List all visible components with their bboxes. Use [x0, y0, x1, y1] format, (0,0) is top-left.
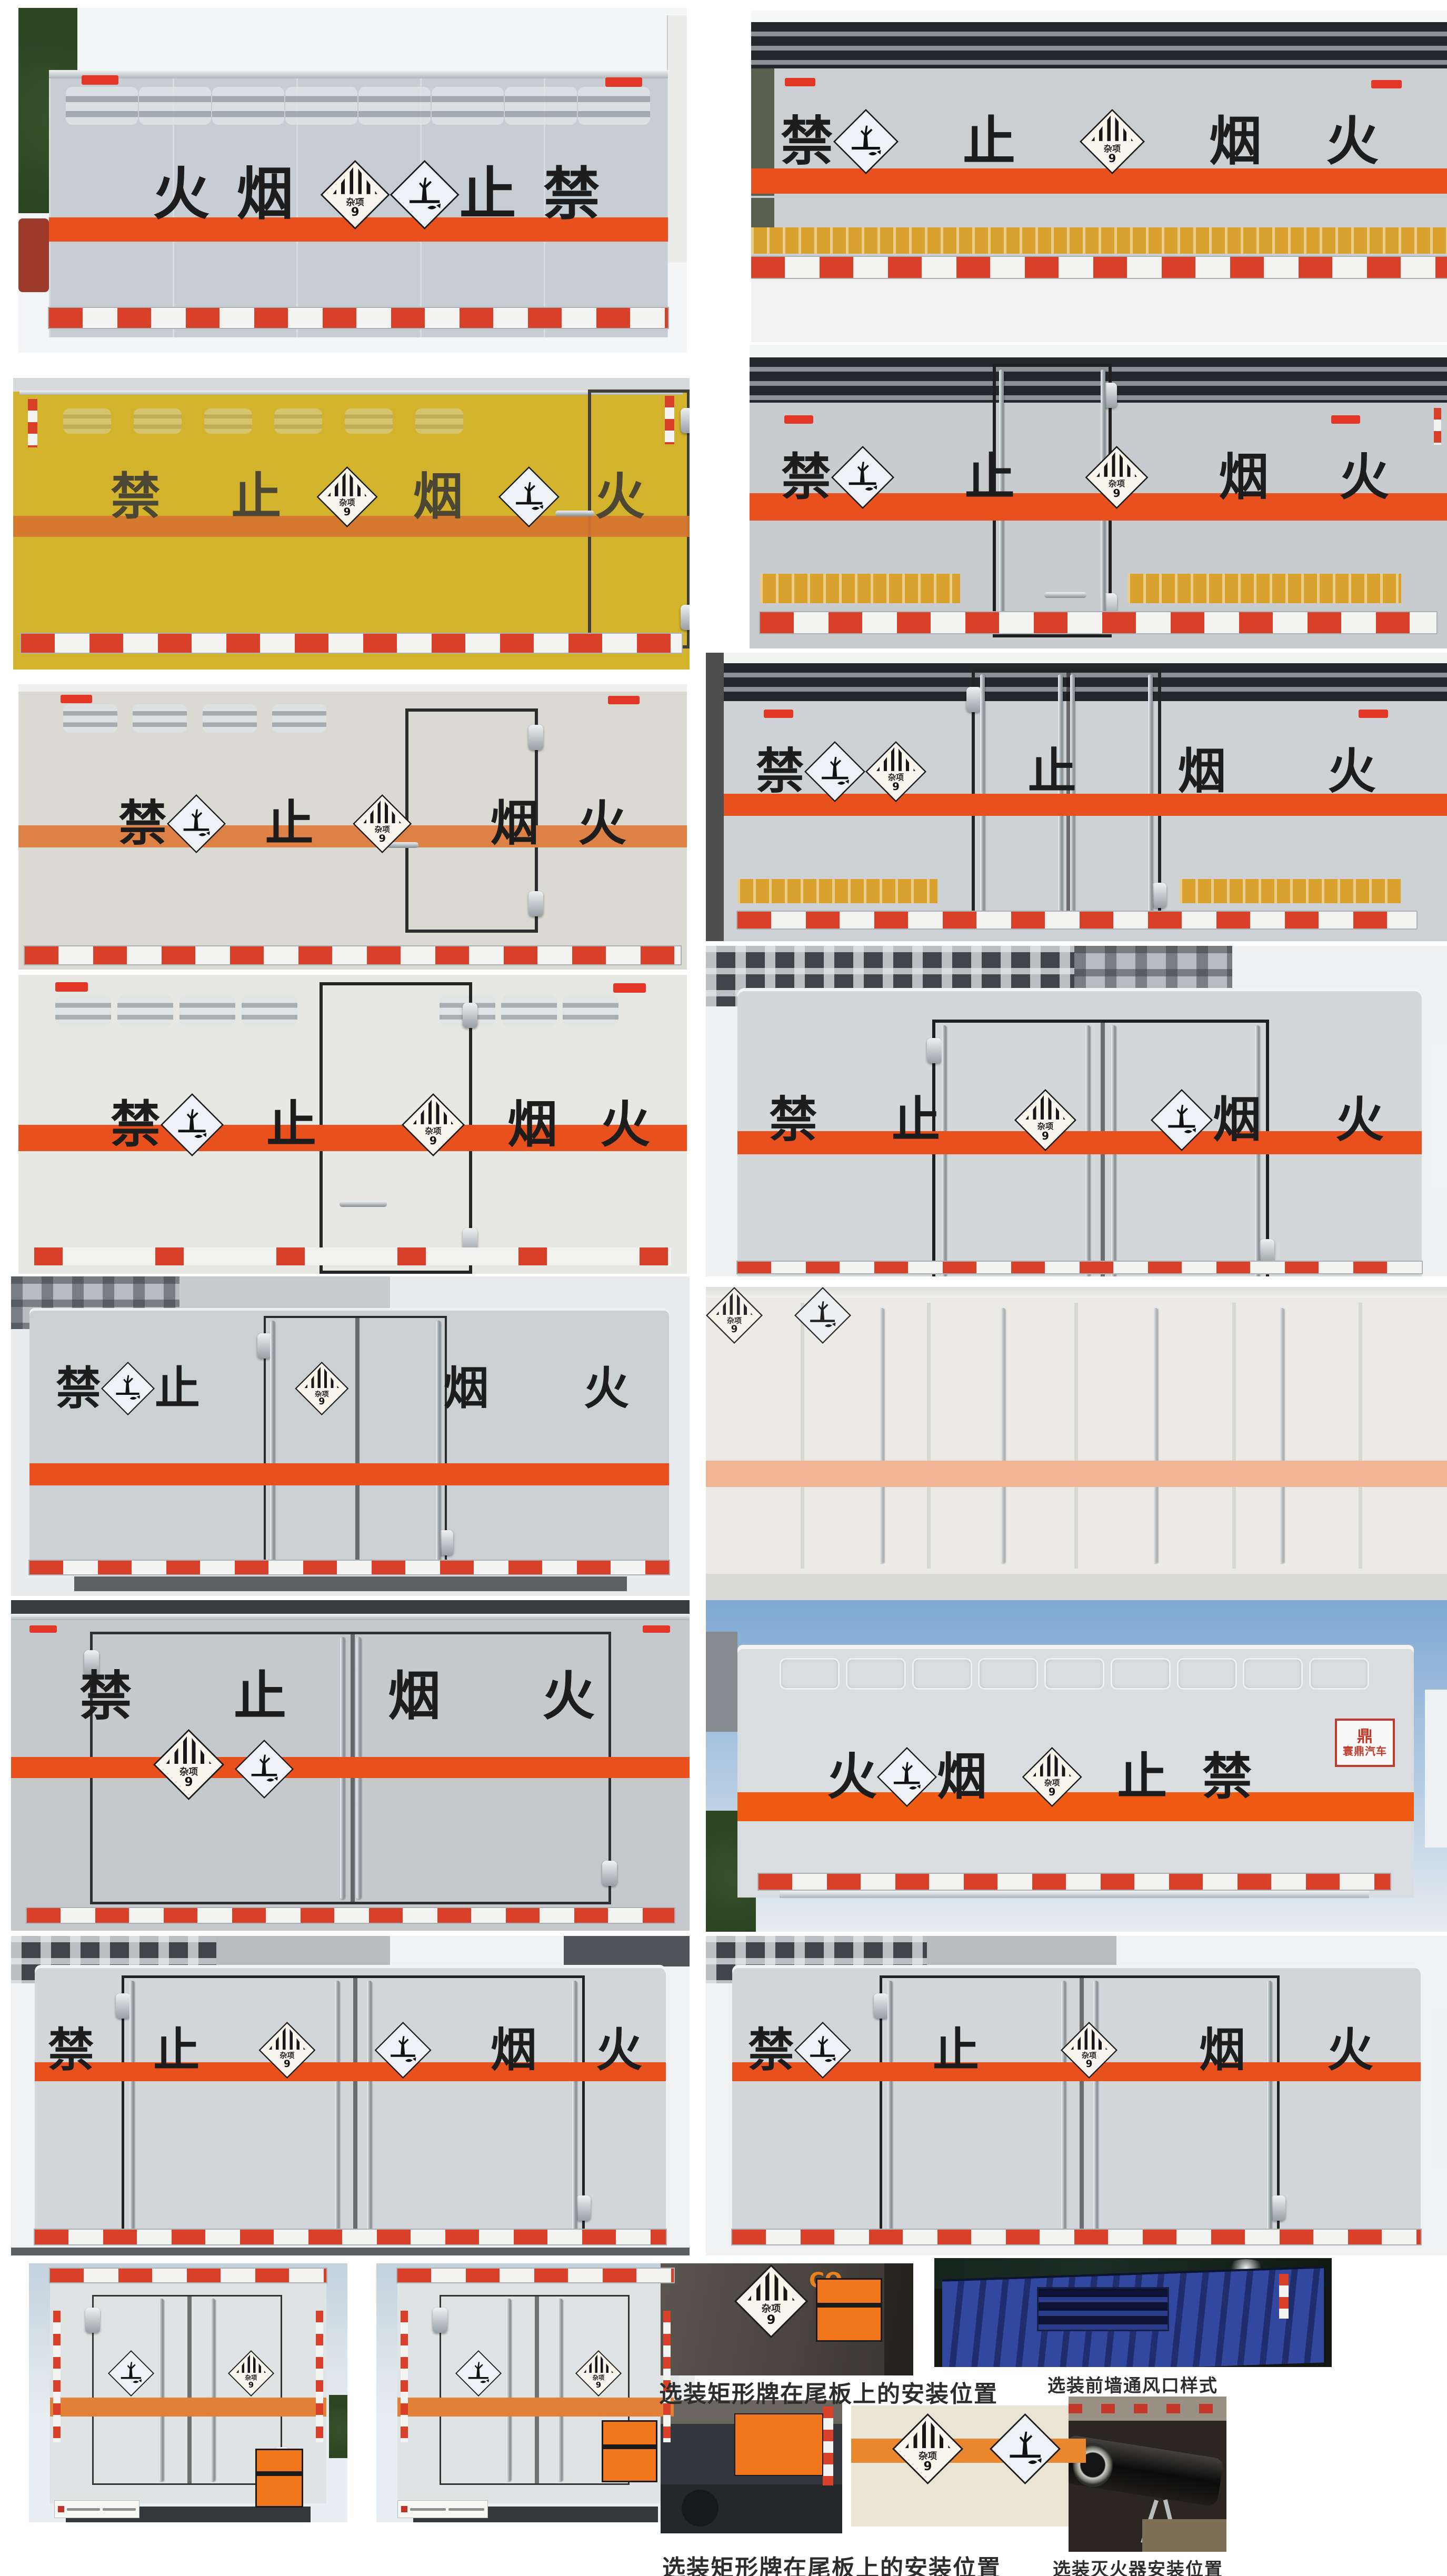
caption-rect-plate-position-top: 选装矩形牌在尾板上的安装位置	[659, 2375, 998, 2409]
photo-truck-side-yellow: 禁止杂项9烟火	[13, 378, 690, 670]
class9-stripes	[363, 798, 401, 823]
vent-louver	[358, 87, 431, 125]
class9-misc-placard-icon: 杂项9	[1085, 446, 1149, 509]
warning-char: 烟	[444, 1366, 489, 1411]
background-edge	[706, 653, 724, 941]
reflective-corner-strip	[665, 396, 674, 444]
roof-rail	[49, 70, 668, 78]
gold-reflective-band	[1180, 879, 1401, 903]
class9-misc-placard-icon: 杂项9	[228, 2350, 274, 2397]
dead-tree-fish-icon	[1001, 2425, 1049, 2473]
environment-hazard-placard-icon	[794, 2022, 851, 2079]
orange-stripe	[29, 1463, 669, 1485]
warning-text-row: 禁止杂项9烟火	[48, 2024, 642, 2076]
warning-text-row: 火烟杂项9止禁	[827, 1748, 1252, 1806]
placard-class-number: 9	[404, 1134, 463, 1147]
red-reflector	[1371, 80, 1402, 88]
warning-text-row: 禁止杂项9烟火	[781, 111, 1379, 173]
placard-face	[1153, 1091, 1211, 1150]
red-reflector	[784, 415, 813, 424]
placard-face: 杂项9	[261, 2023, 314, 2077]
placard-face: 杂项9	[1082, 111, 1143, 173]
warning-char: 烟	[1219, 453, 1269, 503]
photo-truck-rear-overexposed: 杂项9	[706, 1287, 1447, 1600]
brand-emblem-icon: 鼎	[1357, 1729, 1373, 1745]
warning-char: 止	[234, 1670, 286, 1723]
warning-char: 火	[578, 800, 626, 848]
warning-char: 烟	[1177, 747, 1226, 796]
warning-char: 禁	[543, 166, 600, 223]
warning-text-row: 禁止杂项9烟火	[781, 448, 1389, 507]
vent-louver	[846, 1658, 906, 1690]
caption-fire-extinguisher-position: 选装灭火器安装位置	[1053, 2555, 1223, 2576]
dead-tree-fish-icon	[244, 1749, 284, 1789]
reflective-strip	[397, 2269, 674, 2282]
class9-stripes	[1025, 1093, 1065, 1120]
photo-truck-rear-closeup: 禁止烟火 杂项9	[11, 1600, 690, 1931]
environment-hazard-placard-icon	[794, 1287, 851, 1344]
lock-rod	[506, 2299, 511, 2482]
class9-misc-placard-icon: 杂项9	[865, 741, 926, 802]
dead-tree-fish-icon	[115, 2358, 147, 2389]
red-reflector	[605, 77, 642, 87]
red-reflector	[61, 695, 92, 703]
placard-class-number: 9	[318, 506, 376, 518]
vent-louver	[139, 87, 211, 125]
placard-face: 杂项9	[355, 796, 410, 851]
placard-face	[376, 2023, 430, 2077]
photo-truck-side-white: 禁止杂项9烟火	[18, 975, 687, 1274]
reflective-strip	[49, 308, 668, 328]
warning-char: 烟	[507, 1100, 557, 1150]
placard-face: 杂项9	[1062, 2023, 1116, 2077]
warning-char: 禁	[48, 2027, 94, 2073]
roof-edge	[751, 11, 1447, 22]
orange-stripe	[706, 1461, 1447, 1487]
cab-sliver	[1431, 1041, 1447, 1188]
warning-text-row: 禁止杂项9烟火	[769, 1091, 1384, 1150]
environment-hazard-placard-icon	[990, 2413, 1061, 2484]
photo-truck-side-rails: 禁止杂项9烟火	[751, 11, 1447, 342]
placard-face: 杂项9	[229, 2352, 273, 2395]
reflective-corner-strip	[28, 399, 37, 447]
class9-stripes	[333, 165, 377, 194]
placard-class-number: 9	[1016, 1130, 1075, 1142]
reflective-strip	[759, 1874, 1390, 1890]
warning-char: 烟	[491, 2027, 537, 2073]
environment-hazard-placard-icon	[1151, 1089, 1213, 1151]
class9-stripes	[747, 2269, 795, 2300]
placard-class-number: 9	[894, 2460, 961, 2473]
label-logo-mark	[401, 2506, 407, 2512]
reflective-strip	[25, 946, 681, 964]
gold-reflective-band	[737, 879, 937, 903]
label-text-line	[103, 2508, 136, 2511]
red-reflector	[608, 696, 640, 704]
photo-tailboard-plate-top: CO. 杂项9	[661, 2263, 913, 2375]
class9-misc-placard-icon: 杂项9	[317, 466, 378, 527]
vent-louver	[1177, 1658, 1237, 1690]
reflective-side-strip	[401, 2311, 408, 2442]
orange-stripe	[397, 2398, 674, 2417]
class9-stripes	[166, 1734, 211, 1764]
reflective-strip	[27, 1908, 674, 1923]
environment-hazard-placard-icon	[161, 1093, 224, 1156]
warning-char: 禁	[781, 115, 833, 168]
placard-face	[392, 162, 457, 227]
class9-misc-placard-icon: 杂项9	[321, 160, 390, 229]
warning-char: 烟	[236, 166, 293, 223]
vent-row	[63, 704, 326, 733]
vent-louver	[345, 408, 393, 434]
vent-opening	[1037, 2287, 1169, 2331]
vent-louver	[780, 1658, 840, 1690]
placard-face	[833, 448, 893, 507]
vent-louver	[274, 408, 322, 434]
reflective-strip	[737, 912, 1416, 928]
reflective-strip	[760, 612, 1436, 633]
roof-rail	[19, 391, 683, 395]
vent-louver	[55, 996, 111, 1025]
class9-misc-placard-icon: 杂项9	[1022, 1747, 1082, 1807]
door-seam	[355, 1318, 360, 1571]
lock-rod	[880, 1308, 884, 1563]
background-building	[706, 1632, 737, 1732]
warning-char: 禁	[118, 800, 167, 848]
vent-louver	[978, 1658, 1038, 1690]
warning-char: 禁	[1202, 1752, 1252, 1802]
class9-misc-placard-icon: 杂项9	[153, 1729, 224, 1800]
lock-rod	[335, 1981, 340, 2233]
warning-char: 禁	[756, 747, 804, 796]
lock-rod	[129, 1981, 134, 2233]
placard-class-number: 9	[707, 1324, 761, 1335]
placard-class-number: 9	[577, 2380, 621, 2390]
placard-face: 杂项9	[404, 1095, 463, 1155]
photo-placard-detail: 杂项9	[851, 2405, 1086, 2527]
class9-misc-placard-icon: 杂项9	[353, 794, 412, 853]
class9-misc-placard-icon: 杂项9	[1061, 2022, 1117, 2079]
environment-hazard-placard-icon	[804, 741, 865, 802]
vent-louver	[1111, 1658, 1171, 1690]
dead-tree-fish-icon	[109, 1370, 146, 1406]
dead-tree-fish-icon	[176, 804, 216, 844]
environment-hazard-placard-icon	[833, 109, 899, 174]
warning-char: 火	[584, 1366, 629, 1411]
warning-char: 火	[1327, 2027, 1373, 2073]
red-reflector	[82, 75, 118, 85]
placard-face: 杂项9	[155, 1731, 222, 1798]
double-door	[880, 1975, 1280, 2239]
lower-panel	[751, 278, 1447, 342]
warning-char: 火	[1335, 1096, 1384, 1144]
environment-hazard-placard-icon	[108, 2350, 154, 2397]
door-seam	[187, 2297, 192, 2483]
class9-stripes	[236, 2353, 266, 2373]
placard-face	[796, 2023, 850, 2077]
reflective-side-strip	[316, 2311, 323, 2442]
roof-rail	[11, 1614, 690, 1620]
vent-row	[780, 1658, 1369, 1690]
orange-stripe	[11, 1757, 690, 1778]
lock-rod	[367, 1981, 372, 2233]
reflective-strip	[21, 634, 682, 653]
warning-char: 止	[1028, 747, 1076, 796]
environment-hazard-placard-icon	[390, 160, 460, 229]
photo-truck-side-door: 禁止杂项9烟火	[750, 345, 1447, 648]
placard-class-number: 9	[229, 2380, 273, 2390]
placard-class-number: 9	[1087, 487, 1146, 500]
warning-char: 禁	[111, 472, 161, 522]
photo-sheet: 火烟杂项9止禁 禁止杂项9烟火 禁止杂项9烟火 禁止杂项9烟火	[0, 0, 1447, 2576]
reflective-tag	[1279, 2274, 1289, 2319]
placard-class-number: 9	[155, 1775, 222, 1789]
class9-stripes	[269, 2025, 305, 2050]
lock-rod	[1267, 1981, 1272, 2233]
placard-face: 杂项9	[736, 2267, 806, 2336]
warning-char: 止	[155, 1366, 200, 1411]
warning-text-row: 禁止杂项9烟火	[118, 797, 626, 850]
environment-hazard-placard-icon	[877, 1747, 937, 1807]
class9-misc-placard-icon: 杂项9	[734, 2264, 808, 2338]
warning-char: 禁	[769, 1096, 817, 1144]
class9-misc-placard-icon: 杂项9	[1014, 1089, 1076, 1151]
double-door	[122, 1975, 585, 2239]
placard-wrap: 杂项9	[153, 1729, 224, 1800]
vent-row	[55, 996, 297, 1025]
brand-name: 寰鼎汽车	[1343, 1746, 1387, 1756]
class9-stripes	[716, 1291, 752, 1315]
vent-louver	[501, 996, 557, 1025]
placard-face: 杂项9	[318, 468, 376, 525]
sky	[18, 684, 687, 692]
background-building	[1074, 946, 1232, 992]
placard-wrap: 杂项9	[228, 2350, 274, 2397]
vent-louver	[1044, 1658, 1104, 1690]
red-reflector	[29, 1625, 57, 1633]
vent-louver	[63, 704, 117, 733]
label-text-line	[448, 2508, 484, 2511]
vent-louver	[134, 408, 182, 434]
class9-stripes	[584, 2353, 613, 2373]
lock-rod	[572, 1981, 577, 2233]
warning-char: 止	[266, 1100, 316, 1150]
class9-stripes	[1071, 2025, 1107, 2050]
lock-rod	[211, 2299, 215, 2482]
orange-rect-plate	[734, 2413, 823, 2476]
label-text-line	[410, 2508, 446, 2511]
warning-char: 火	[596, 2027, 642, 2073]
lock-rod	[436, 1321, 441, 1568]
door-seam	[353, 1978, 357, 2236]
dead-tree-fish-icon	[463, 2358, 494, 2389]
warning-text-row: 禁止杂项9烟火	[56, 1362, 629, 1415]
vent-louver	[578, 87, 650, 125]
roof-edge	[724, 653, 1447, 663]
dead-tree-fish-icon	[384, 2031, 422, 2069]
photo-truck-rear-buildings: 禁止杂项9烟火	[706, 946, 1447, 1276]
vent-louver	[66, 87, 138, 125]
environment-hazard-placard-icon	[455, 2350, 502, 2397]
reflective-strip	[732, 2230, 1421, 2244]
background-building	[564, 1936, 690, 1966]
warning-char: 烟	[388, 1670, 441, 1723]
warning-char: 烟	[413, 472, 463, 522]
placard-face	[103, 1363, 153, 1414]
class9-misc-placard-icon: 杂项9	[402, 1093, 465, 1156]
class9-stripes	[876, 745, 915, 771]
class9-misc-placard-icon: 杂项9	[706, 1287, 763, 1344]
dead-tree-fish-icon	[814, 751, 856, 793]
placard-face: 杂项9	[867, 743, 924, 800]
warning-char: 烟	[1213, 1096, 1261, 1144]
top-rails	[751, 22, 1447, 68]
warning-char: 止	[1117, 1752, 1167, 1802]
red-reflector	[785, 78, 815, 86]
environment-hazard-placard-icon	[167, 794, 226, 853]
placard-class-number: 9	[1082, 152, 1143, 165]
placard-wrap	[990, 2413, 1061, 2484]
placard-face	[163, 1095, 222, 1155]
warning-char: 止	[965, 453, 1015, 503]
reflective-strip	[751, 257, 1447, 278]
placard-face	[806, 743, 863, 800]
door-seam	[535, 2297, 539, 2483]
class9-misc-placard-icon: 杂项9	[258, 2022, 315, 2079]
trees	[329, 2395, 347, 2458]
caption-rect-plate-position-bottom: 选装矩形牌在尾板上的安装位置	[662, 2549, 1001, 2576]
placard-face	[457, 2352, 501, 2395]
placard-class-number: 9	[323, 205, 388, 219]
reflective-strip	[35, 2230, 666, 2244]
placard-row: 杂项9	[706, 1287, 1447, 1345]
placard-class-number: 9	[1062, 2059, 1116, 2070]
red-reflector	[55, 982, 88, 992]
placard-face	[835, 111, 897, 173]
warning-char: 火	[542, 1670, 595, 1723]
dead-tree-fish-icon	[841, 456, 884, 498]
warning-char: 止	[963, 115, 1015, 168]
placard-face: 杂项9	[296, 1363, 347, 1414]
placard-class-number: 9	[296, 1396, 347, 1407]
vent-louver	[63, 408, 111, 434]
photo-truck-side-cream: 禁止杂项9烟火	[18, 684, 687, 970]
lock-rod	[270, 1321, 275, 1568]
background-vehicle	[18, 218, 49, 292]
warning-text-row: 火烟杂项9止禁	[153, 162, 600, 228]
warning-text-row: 禁止杂项9烟火	[748, 2024, 1373, 2076]
class9-misc-placard-icon: 杂项9	[295, 1362, 348, 1415]
warning-char: 火	[595, 472, 645, 522]
placard-face: 杂项9	[1024, 1749, 1080, 1805]
warning-text-row: 禁止杂项9烟火	[111, 468, 645, 525]
vent-louver	[1243, 1658, 1303, 1690]
vent-louver	[912, 1658, 972, 1690]
cab-sliver	[1433, 2010, 1447, 2168]
photo-truck-rear-grey: 禁止杂项9烟火	[11, 1276, 690, 1596]
lock-rod	[1280, 1308, 1284, 1563]
red-reflector	[643, 1625, 670, 1633]
reflective-strip	[34, 1247, 671, 1265]
placard-face: 杂项9	[323, 162, 388, 227]
placard-face	[236, 1741, 292, 1796]
warning-char: 烟	[1199, 2027, 1245, 2073]
warning-char: 止	[933, 2027, 979, 2073]
vent-louver	[563, 996, 618, 1025]
placard-face	[500, 468, 557, 525]
lock-rod	[1093, 1981, 1098, 2233]
class9-stripes	[413, 1097, 454, 1124]
vent-louver	[212, 87, 284, 125]
warning-char: 禁	[748, 2027, 794, 2073]
warning-char: 止	[460, 166, 516, 223]
placard-face	[992, 2415, 1059, 2482]
vent-row	[66, 87, 650, 125]
placard-wrap	[108, 2350, 154, 2397]
truck-side-strip	[1069, 2397, 1226, 2421]
lock-rod	[887, 1981, 892, 2233]
placard-wrap: 杂项9	[575, 2350, 622, 2397]
lock-rod	[1001, 1308, 1005, 1563]
warning-char: 止	[265, 800, 314, 848]
class9-stripes	[1091, 113, 1133, 141]
dead-tree-fish-icon	[401, 171, 448, 218]
red-reflector	[1331, 415, 1360, 424]
orange-stripe	[50, 2398, 326, 2417]
warning-char: 禁	[111, 1100, 161, 1150]
background-building	[667, 15, 687, 263]
class9-stripes	[905, 2418, 950, 2448]
placard-face: 杂项9	[1016, 1091, 1075, 1150]
photo-rear-plates-b: 杂项9	[376, 2263, 695, 2522]
warning-char: 禁	[56, 1366, 101, 1411]
label-text-line	[67, 2508, 100, 2511]
placard-class-number: 9	[867, 781, 924, 793]
wheel	[682, 2490, 718, 2527]
manufacturer-label-plate	[397, 2500, 488, 2518]
placard-face: 杂项9	[894, 2415, 961, 2482]
photo-truck-side-grey: 火烟杂项9止禁	[18, 8, 687, 353]
warning-text-row: 禁止杂项9烟火	[111, 1096, 650, 1154]
placard-wrap: 杂项9	[734, 2264, 808, 2338]
dead-tree-fish-icon	[508, 476, 550, 518]
class9-misc-placard-icon: 杂项9	[892, 2413, 963, 2484]
rear-bumper	[780, 1891, 1369, 1898]
dead-tree-fish-icon	[803, 2031, 842, 2069]
warning-char: 火	[600, 1100, 650, 1150]
caption-front-wall-vent-style: 选装前墙通风口样式	[1047, 2371, 1218, 2397]
environment-hazard-placard-icon	[375, 2022, 432, 2079]
class9-misc-placard-icon: 杂项9	[1080, 109, 1145, 174]
reflective-corner-strip	[1434, 408, 1441, 445]
reflective-strip	[50, 2269, 326, 2282]
red-reflector	[764, 710, 793, 718]
lock-rod	[1061, 1981, 1066, 2233]
door-handle	[1044, 592, 1086, 598]
placard-class-number: 9	[261, 2059, 314, 2070]
dead-tree-fish-icon	[803, 1296, 842, 1334]
vent-louver	[432, 87, 504, 125]
gold-reflective-band	[1127, 574, 1401, 603]
warning-char: 止	[153, 2027, 199, 2073]
orange-rect-plate	[602, 2420, 657, 2482]
placard-class-number: 9	[736, 2312, 806, 2327]
tailboard-edge	[884, 2263, 913, 2375]
reflective-strip	[29, 1561, 669, 1574]
red-reflector	[613, 983, 646, 993]
vent-louver	[272, 704, 326, 733]
photo-truck-side-double-door: 禁杂项9止烟火	[706, 653, 1447, 941]
